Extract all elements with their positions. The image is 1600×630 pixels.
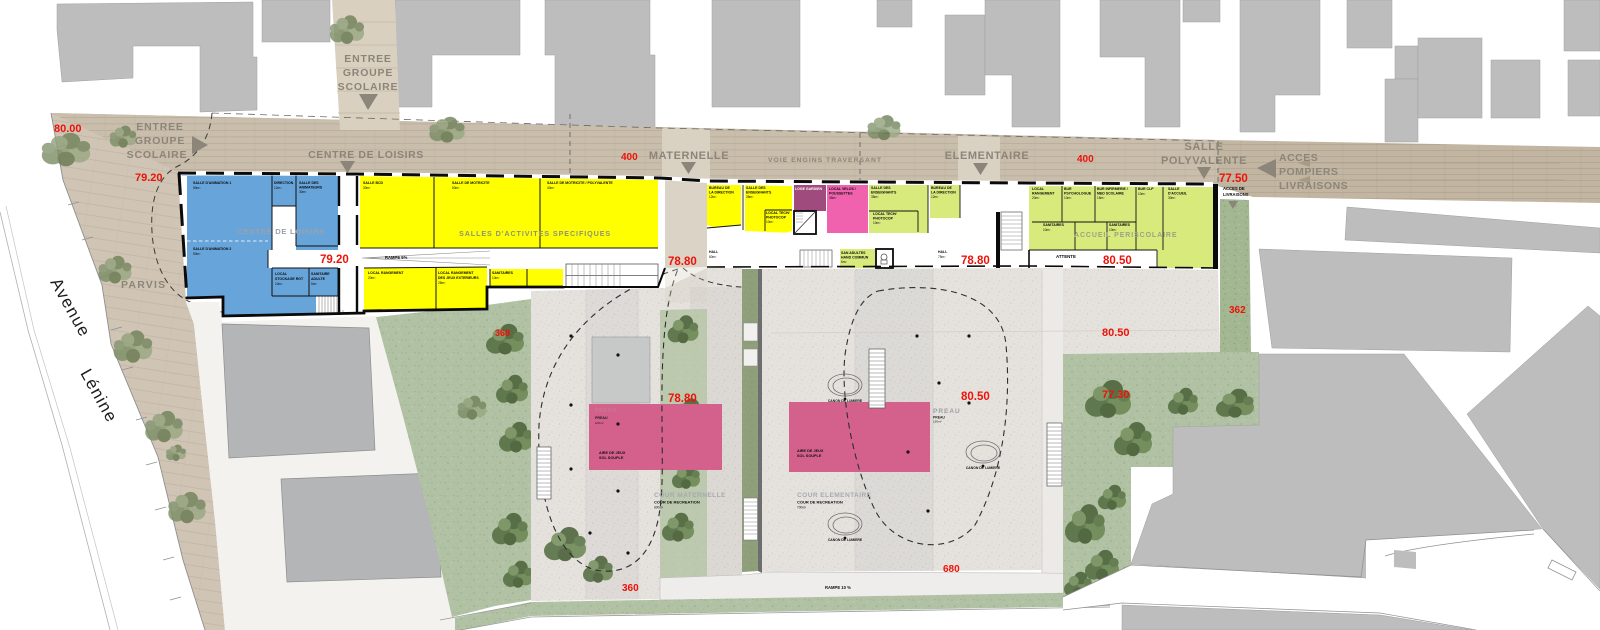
- svg-text:MATERNELLE: MATERNELLE: [649, 150, 729, 162]
- svg-text:LOCAL TECH/: LOCAL TECH/: [873, 212, 896, 216]
- svg-text:LOGE GARDIEN: LOGE GARDIEN: [795, 187, 823, 191]
- svg-text:DIRECTION: DIRECTION: [274, 181, 294, 185]
- svg-text:LOCAL RANGEMENT: LOCAL RANGEMENT: [368, 271, 404, 275]
- svg-text:SOL SOUPLE: SOL SOUPLE: [599, 456, 624, 460]
- svg-text:GROUPE: GROUPE: [343, 67, 393, 79]
- svg-text:COUR DE RECREATION: COUR DE RECREATION: [654, 500, 700, 505]
- svg-text:10m²: 10m²: [1043, 228, 1050, 232]
- svg-text:40m²: 40m²: [547, 186, 554, 190]
- svg-text:10m²: 10m²: [1138, 192, 1145, 196]
- svg-text:25m²: 25m²: [438, 281, 445, 285]
- svg-text:SALLE D'ANIMATION 1: SALLE D'ANIMATION 1: [193, 181, 231, 185]
- svg-text:ELEMENTAIRE: ELEMENTAIRE: [945, 150, 1030, 162]
- svg-text:SALLE: SALLE: [1184, 141, 1223, 153]
- svg-text:30m²: 30m²: [299, 190, 306, 194]
- svg-text:362: 362: [1229, 305, 1246, 316]
- svg-text:SALLE DES: SALLE DES: [746, 186, 766, 190]
- svg-text:15m²: 15m²: [1097, 196, 1104, 200]
- svg-text:ACCUEIL PERISCOLAIRE: ACCUEIL PERISCOLAIRE: [1074, 232, 1177, 239]
- svg-text:77.50: 77.50: [1219, 173, 1248, 185]
- svg-text:80.50: 80.50: [1102, 327, 1130, 339]
- svg-text:SANITAIRES: SANITAIRES: [492, 271, 514, 275]
- svg-text:SALLES D'ACTIVITES SPECIFIQUES: SALLES D'ACTIVITES SPECIFIQUES: [459, 229, 611, 238]
- svg-text:PHOTOCOP: PHOTOCOP: [766, 216, 787, 220]
- svg-text:SALLE DES: SALLE DES: [871, 186, 891, 190]
- svg-text:ADULTE: ADULTE: [311, 277, 326, 281]
- svg-text:78.80: 78.80: [668, 256, 697, 268]
- svg-text:77.30: 77.30: [1102, 389, 1130, 401]
- svg-text:LOCAL RANGEMENT: LOCAL RANGEMENT: [438, 271, 474, 275]
- svg-text:RAMPE 10 %: RAMPE 10 %: [825, 585, 851, 590]
- svg-text:SALLE: SALLE: [1168, 187, 1180, 191]
- svg-text:AIRE DE JEUX: AIRE DE JEUX: [599, 451, 626, 455]
- svg-text:SALLE DE MOTRICITE / POLYVALEN: SALLE DE MOTRICITE / POLYVALENTE: [547, 181, 613, 185]
- svg-text:PREAU: PREAU: [595, 416, 608, 420]
- svg-text:10m²: 10m²: [1064, 196, 1071, 200]
- svg-text:50m²: 50m²: [193, 252, 200, 256]
- svg-text:SANITAIRE: SANITAIRE: [311, 272, 330, 276]
- svg-text:HALL: HALL: [938, 250, 948, 254]
- svg-text:SALLE BCD: SALLE BCD: [363, 181, 384, 185]
- svg-text:AIRE DE JEUX: AIRE DE JEUX: [797, 449, 824, 453]
- svg-text:75m²: 75m²: [938, 255, 945, 259]
- svg-text:50m²: 50m²: [193, 186, 200, 190]
- svg-text:ENSEIGNANTS: ENSEIGNANTS: [746, 191, 772, 195]
- svg-text:COUR ELEMENTAIRE: COUR ELEMENTAIRE: [797, 492, 872, 499]
- svg-text:RAMPE 5%: RAMPE 5%: [385, 255, 408, 260]
- svg-text:20m²: 20m²: [1032, 196, 1039, 200]
- svg-text:10m²: 10m²: [275, 282, 282, 286]
- svg-text:ATTENTE: ATTENTE: [1056, 254, 1076, 259]
- svg-text:LOCAL TECH/: LOCAL TECH/: [766, 211, 789, 215]
- svg-text:CANON DE LUMIERE: CANON DE LUMIERE: [828, 399, 863, 403]
- svg-text:50m²: 50m²: [452, 186, 459, 190]
- svg-text:PREAU: PREAU: [933, 408, 961, 415]
- svg-text:GROUPE: GROUPE: [135, 135, 185, 147]
- svg-text:700m²: 700m²: [797, 506, 806, 510]
- svg-text:CENTRE DE LOISIRS: CENTRE DE LOISIRS: [308, 149, 424, 161]
- svg-text:HAND COMMUN: HAND COMMUN: [841, 256, 869, 260]
- svg-text:80.00: 80.00: [54, 123, 82, 135]
- svg-text:POMPIERS: POMPIERS: [1279, 166, 1338, 178]
- svg-text:SALLE DE MOTRICITE: SALLE DE MOTRICITE: [452, 181, 490, 185]
- svg-text:PHOTOCOP: PHOTOCOP: [873, 217, 894, 221]
- svg-text:ENTREE: ENTREE: [136, 121, 183, 133]
- svg-text:30m²: 30m²: [1168, 196, 1175, 200]
- svg-text:79.20: 79.20: [135, 172, 163, 184]
- svg-text:368: 368: [495, 328, 510, 338]
- svg-text:20m²: 20m²: [368, 276, 375, 280]
- svg-text:LIVRAISONS: LIVRAISONS: [1279, 180, 1348, 192]
- svg-text:CENTRE DE LOISIRS: CENTRE DE LOISIRS: [237, 227, 325, 236]
- svg-text:LA DIRECTION: LA DIRECTION: [709, 191, 734, 195]
- svg-text:LA DIRECTION: LA DIRECTION: [931, 191, 956, 195]
- svg-text:PARVIS: PARVIS: [121, 279, 166, 291]
- svg-text:BUREAU DE: BUREAU DE: [931, 186, 952, 190]
- svg-text:12m²: 12m²: [709, 195, 716, 199]
- svg-text:78.80: 78.80: [668, 393, 697, 405]
- svg-text:CANON DE LUMIERE: CANON DE LUMIERE: [828, 538, 863, 542]
- svg-text:400: 400: [1077, 154, 1094, 165]
- svg-text:BUR INFIRMERIE /: BUR INFIRMERIE /: [1097, 187, 1128, 191]
- svg-text:SANITAIRES: SANITAIRES: [1109, 223, 1131, 227]
- svg-text:35m²: 35m²: [871, 195, 878, 199]
- svg-text:BUR CLP: BUR CLP: [1138, 187, 1154, 191]
- svg-text:600m²: 600m²: [654, 506, 663, 510]
- svg-text:POLYVALENTE: POLYVALENTE: [1161, 155, 1247, 167]
- svg-text:BUR: BUR: [1064, 187, 1072, 191]
- svg-text:45m²: 45m²: [829, 196, 836, 200]
- svg-text:150m²: 150m²: [933, 420, 942, 424]
- svg-text:12m²: 12m²: [931, 195, 938, 199]
- svg-text:COUR MATERNELLE: COUR MATERNELLE: [654, 492, 726, 499]
- svg-text:6m²: 6m²: [841, 260, 847, 264]
- svg-text:SAN ADULTES: SAN ADULTES: [841, 251, 866, 255]
- svg-text:ENSEIGNANTS: ENSEIGNANTS: [871, 191, 897, 195]
- svg-text:ENTREE: ENTREE: [344, 53, 391, 65]
- svg-text:ANIMATEURS: ANIMATEURS: [299, 186, 323, 190]
- svg-text:680: 680: [943, 564, 960, 575]
- svg-text:LIVRAISONS: LIVRAISONS: [1223, 192, 1249, 197]
- svg-text:BUREAU DE: BUREAU DE: [709, 186, 730, 190]
- svg-text:80.50: 80.50: [1103, 255, 1132, 267]
- svg-text:STOCKAGE RGT: STOCKAGE RGT: [275, 277, 304, 281]
- svg-text:SCOLAIRE: SCOLAIRE: [127, 149, 188, 161]
- svg-text:CANON DE LUMIERE: CANON DE LUMIERE: [966, 466, 1001, 470]
- svg-text:SANITAIRES: SANITAIRES: [1043, 223, 1065, 227]
- svg-text:ACCES DE: ACCES DE: [1223, 186, 1245, 191]
- svg-text:POUSSETTES: POUSSETTES: [829, 192, 853, 196]
- svg-text:LOCAL: LOCAL: [275, 272, 288, 276]
- svg-text:30m²: 30m²: [363, 186, 370, 190]
- svg-text:60m²: 60m²: [709, 255, 716, 259]
- svg-text:COUR DE RECREATION: COUR DE RECREATION: [797, 500, 843, 505]
- svg-text:D'ACCUEIL: D'ACCUEIL: [1168, 192, 1188, 196]
- svg-text:35m²: 35m²: [746, 195, 753, 199]
- svg-text:SALLE D'ANIMATION 2: SALLE D'ANIMATION 2: [193, 247, 231, 251]
- svg-text:100m²: 100m²: [595, 421, 604, 425]
- svg-text:ACCES: ACCES: [1279, 152, 1318, 164]
- svg-text:VOIE ENGINS TRAVERSANT: VOIE ENGINS TRAVERSANT: [768, 157, 882, 164]
- svg-text:400: 400: [621, 152, 638, 163]
- svg-text:12m²: 12m²: [274, 186, 281, 190]
- svg-text:LOCAL: LOCAL: [1032, 187, 1045, 191]
- svg-text:360: 360: [622, 583, 639, 594]
- svg-text:RANGEMENT: RANGEMENT: [1032, 192, 1055, 196]
- svg-text:DES JEUX EXTERIEURS: DES JEUX EXTERIEURS: [438, 276, 479, 280]
- svg-text:SOL SOUPLE: SOL SOUPLE: [797, 454, 822, 458]
- svg-text:SCOLAIRE: SCOLAIRE: [338, 81, 399, 93]
- svg-text:10m²: 10m²: [873, 221, 880, 225]
- svg-text:78.80: 78.80: [961, 255, 990, 267]
- svg-text:PSYCHOLOGUE: PSYCHOLOGUE: [1064, 192, 1092, 196]
- svg-text:SALLE DES: SALLE DES: [299, 181, 319, 185]
- svg-text:LOCAL VELOS /: LOCAL VELOS /: [829, 187, 856, 191]
- svg-text:79.20: 79.20: [320, 254, 349, 266]
- svg-text:80.50: 80.50: [961, 391, 990, 403]
- svg-text:HALL: HALL: [709, 250, 719, 254]
- svg-text:MED SCOLAIRE: MED SCOLAIRE: [1097, 192, 1125, 196]
- svg-text:PREAU: PREAU: [595, 408, 617, 414]
- svg-text:5m²: 5m²: [311, 282, 317, 286]
- svg-text:10m²: 10m²: [766, 220, 773, 224]
- svg-text:10m²: 10m²: [492, 276, 499, 280]
